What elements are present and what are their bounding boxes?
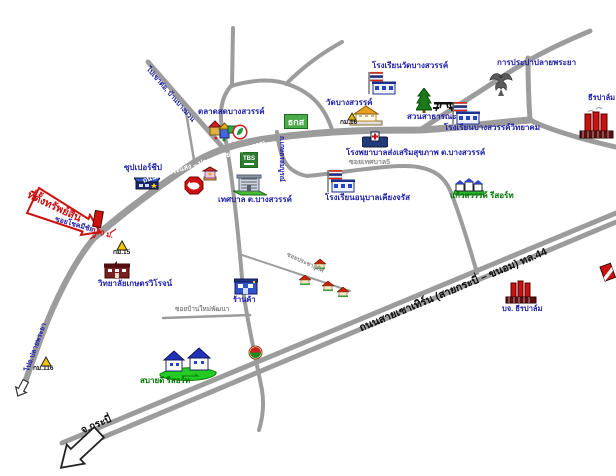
soi-tesaban5-label: ซอยเทศบาล5 xyxy=(349,159,390,166)
km16-label: กม.16 xyxy=(340,120,357,127)
bank-logo-icon xyxy=(232,124,248,145)
krabi-arrow xyxy=(52,423,108,476)
tbs-sign-label: TBS xyxy=(243,156,255,162)
pork-shop-sign-icon xyxy=(184,176,204,200)
baac-sign-label: ธกส xyxy=(288,115,304,129)
striped-marker-icon xyxy=(600,263,615,281)
school-wat-label: โรงเรียนวัดบางสวรรค์ xyxy=(372,62,448,70)
palm-factory-top-label: ธีรปาล์ม xyxy=(588,94,615,102)
municipality-label: เทศบาล ต.บางสวรรค์ xyxy=(218,196,292,204)
market-ne-stub xyxy=(286,42,342,84)
resort-kaewsawan-label: แก้วสวรรค์ รีสอร์ท xyxy=(450,192,514,200)
highway44-north-lane xyxy=(62,213,616,443)
baac-bank-sign: ธกส xyxy=(284,114,308,129)
tbs-sign-bar xyxy=(244,163,254,165)
palm-factory-co-label: บจ. ธีรปาล์ม xyxy=(502,305,542,313)
shrine-icon xyxy=(202,166,218,186)
garuda-emblem-icon xyxy=(488,70,514,103)
road-network xyxy=(0,0,616,476)
college-label: วิทยาลัยเกษตรวิโรจน์ xyxy=(98,280,172,288)
property-marker xyxy=(93,210,104,227)
road-sw xyxy=(24,237,95,386)
house-icon xyxy=(299,272,311,290)
school-wat-icon xyxy=(366,70,396,101)
house-icon xyxy=(337,284,349,302)
market-label: ตลาดสดบางสวรรค์ xyxy=(198,108,265,116)
km116-label: กม.116 xyxy=(33,366,54,373)
km15-label: กม.15 xyxy=(113,250,130,257)
school-wittayakom-label: โรงเรียนบางสวรรค์วิทยาคม xyxy=(444,124,540,132)
soi-banmai-label: ซอยบ้านใหม่พัฒนา xyxy=(175,307,229,314)
market-top-stub xyxy=(232,28,233,86)
logo-marker-icon xyxy=(248,345,263,365)
house-icon xyxy=(322,278,334,296)
school-anuban-label: โรงเรียนอนุบาลเคียงจรัส xyxy=(325,194,410,202)
resort-sabaidee-label: สบายดี รีสอร์ท xyxy=(140,377,190,385)
kaset-road-label: ถ.เกษตรสมบูรณ์ xyxy=(278,136,285,182)
supercheap-label: ซุปเปอร์ชีป xyxy=(124,164,162,172)
map-canvas: ธกส TBS xyxy=(0,0,616,476)
palm-factory-icon xyxy=(578,106,616,147)
waterworks-label: การประปาปลายพระยา xyxy=(497,59,576,67)
km-triangle-markers xyxy=(41,113,356,366)
temple-icon xyxy=(348,104,384,132)
soi-horizontal xyxy=(163,315,250,318)
hospital-label: โรงพยาบาลส่งเสริมสุขภาพ ต.บางสวรรค์ xyxy=(346,149,485,157)
shop-label: ร้านค้า xyxy=(233,296,256,304)
wat-label: วัดบางสวรรค์ xyxy=(326,99,372,107)
park-label: สวนสาธารณะ xyxy=(407,113,457,121)
